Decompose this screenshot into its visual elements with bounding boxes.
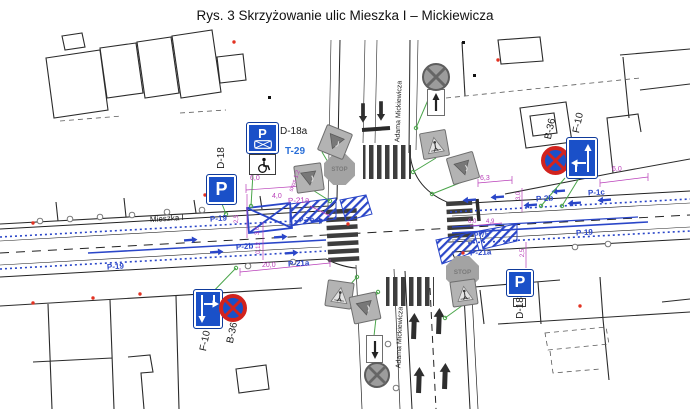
stop-text: STOP xyxy=(454,269,472,276)
stop-text: STOP xyxy=(331,167,347,173)
sign-d18a-reserved-parking: P xyxy=(246,122,279,154)
label-p-19: P-19 xyxy=(576,229,593,238)
sign-label-t29: T-29 xyxy=(285,147,305,157)
lane-arrow-marking xyxy=(210,248,224,256)
sign-d18-parking-west: P xyxy=(206,174,237,205)
survey-point-red xyxy=(91,296,94,299)
label-p-21a: P-21a xyxy=(470,248,492,257)
lane-arrow-marking xyxy=(285,249,299,257)
site-plan-drawing xyxy=(0,0,690,409)
sign-f10-lane-directions-ne xyxy=(566,137,598,179)
sign-one-way-down-south xyxy=(366,335,383,363)
drawing-canvas: Rys. 3 Skrzyżowanie ulic Mieszka I – Mic… xyxy=(0,0,690,409)
survey-point-red xyxy=(31,221,34,224)
stop-line-east xyxy=(477,199,479,221)
d18-se-letter: P xyxy=(515,274,526,292)
yield-icon xyxy=(322,129,348,155)
arrow-down-icon xyxy=(369,339,381,360)
yield-icon xyxy=(451,156,476,181)
utility-circle xyxy=(199,207,205,213)
label-p-7b: P-7b xyxy=(474,232,490,240)
directional-lane-arrow xyxy=(408,313,420,339)
label-p-19: P-19 xyxy=(210,214,227,223)
label-2-5: 2,5 xyxy=(520,249,526,257)
survey-point-red xyxy=(461,251,464,254)
directional-lane-arrow xyxy=(359,103,367,123)
utility-circle xyxy=(97,214,103,220)
pedestrian-crossing-icon xyxy=(423,133,446,156)
label-3-0: 3,0 xyxy=(516,192,522,200)
sign-leader-line xyxy=(413,158,436,172)
lane-arrows-icon xyxy=(569,141,595,175)
lane-arrow-marking xyxy=(567,199,581,207)
sign-d6-pedestrian-crossing-ne xyxy=(419,129,450,160)
lane-arrow-marking xyxy=(490,193,504,201)
label-p-21a: P-21a xyxy=(288,196,310,205)
utility-circle xyxy=(385,341,391,347)
pedestrian-crossing-icon xyxy=(328,283,351,306)
label-p-21a: P-21a xyxy=(288,259,310,268)
utility-circle xyxy=(605,241,611,247)
arrow-up-icon xyxy=(430,92,442,113)
lane-arrows-icon xyxy=(195,292,221,326)
sign-label-d18-west: D-18 xyxy=(217,142,227,174)
directional-lane-arrow xyxy=(433,308,445,334)
label-6-3: 6,3 xyxy=(480,175,490,182)
label-6-0: 6,0 xyxy=(468,219,476,225)
cross-icon xyxy=(366,364,388,386)
utility-circle xyxy=(572,244,578,250)
survey-point-red xyxy=(31,301,34,304)
utility-circle xyxy=(129,212,135,218)
d18-west-letter: P xyxy=(215,179,227,200)
label-20-0: 20,0 xyxy=(262,262,276,269)
pedestrian-crossing-icon xyxy=(453,282,474,303)
sign-label-d18a: D-18a xyxy=(280,127,307,137)
stop-line-north xyxy=(362,128,390,130)
label-0-12: 0,12 xyxy=(256,242,262,254)
label-6-0: 6,0 xyxy=(250,175,260,182)
label-3-0: 3,0 xyxy=(255,227,261,235)
label-p-1c: P-1c xyxy=(588,189,605,198)
south-lane-dashed xyxy=(430,288,436,409)
sign-leader-line xyxy=(374,318,376,336)
survey-point-red xyxy=(496,58,499,61)
lane-arrow-marking xyxy=(274,233,288,241)
survey-point-red xyxy=(346,222,349,225)
cross-icon xyxy=(424,65,448,89)
survey-point-red xyxy=(578,304,581,307)
label-p-7b: P-7b xyxy=(299,216,315,224)
survey-point-red xyxy=(232,40,235,43)
lane-arrow-marking xyxy=(597,196,611,204)
utility-circle xyxy=(245,263,251,269)
point-marker xyxy=(473,74,476,77)
b36-x-icon xyxy=(223,298,243,318)
sign-a7-yield-sw xyxy=(348,291,381,324)
label-4-9: 4,9 xyxy=(486,219,494,225)
point-marker xyxy=(268,96,271,99)
label-p-2b: P-2b xyxy=(536,195,554,204)
utility-circle xyxy=(37,218,43,224)
yield-icon xyxy=(298,167,321,190)
directional-lane-arrow xyxy=(413,367,425,393)
d18a-letter: P xyxy=(258,127,267,140)
sign-t29-disabled-plate xyxy=(249,154,276,175)
directional-lane-arrow xyxy=(439,363,451,389)
utility-circle xyxy=(67,216,73,222)
b36-x-icon xyxy=(545,150,566,171)
point-marker xyxy=(462,41,465,44)
directional-lane-arrow xyxy=(377,101,385,121)
crossed-circle-symbol-south xyxy=(364,362,390,388)
label-6-0: 6,0 xyxy=(612,166,622,173)
label-p-19: P-19 xyxy=(107,262,124,271)
sign-d6-pedestrian-crossing-se xyxy=(449,278,478,307)
label-p-2b: P-2b xyxy=(236,242,254,251)
label-2-5: 2,5 xyxy=(234,215,240,223)
wheelchair-icon xyxy=(255,157,271,173)
sign-label-d18-se: D-18 xyxy=(516,292,526,324)
yield-icon xyxy=(353,296,377,320)
koperta-icon xyxy=(254,140,272,149)
sign-one-way-up-ne xyxy=(427,89,445,116)
label-4-0: 4,0 xyxy=(272,193,282,200)
survey-point-red xyxy=(138,292,141,295)
koperta-parking-bay-marking xyxy=(247,203,292,233)
crossed-circle-symbol-ne xyxy=(422,63,450,91)
